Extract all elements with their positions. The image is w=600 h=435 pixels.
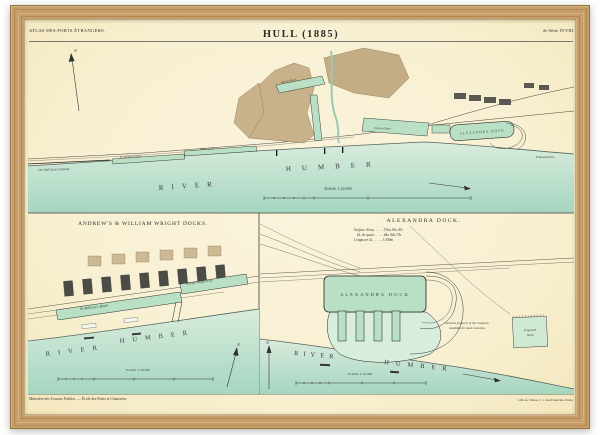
north-arrow-icon: N. [69,48,79,111]
dock-locks [172,302,182,322]
right-inset-title: ALEXANDRA DOCK. [387,218,462,224]
lithographer-credit: Lith. A. Simon, 1. r. des Poitevins, Par… [518,398,573,403]
svg-text:N.: N. [73,48,78,53]
svg-text:available for dock extension.: available for dock extension. [449,326,486,330]
proposed-dock-label-1: Proposed [523,328,537,333]
map-plate: ATLAS DES PORTS ÉTRANGERS. HULL (1885) 2… [24,19,576,415]
left-inset-map: ANDREW'S & WILLIAM WRIGHT DOCKS. [28,221,259,394]
scale-label-right: Echelle 1:10.000 [347,372,372,376]
left-inset-title: ANDREW'S & WILLIAM WRIGHT DOCKS. [78,221,208,227]
frame-right [576,6,589,428]
main-map: The Hull Dock Company St Andrew's Dock A… [28,48,574,213]
svg-text:N.: N. [265,340,270,345]
warehouses [454,83,549,105]
svg-text:Longueur id. . . . . . 3.300m: Longueur id. . . . . . 3.300m [353,238,394,242]
svg-text:Id. de quais . . . . . 4ha 44: Id. de quais . . . . . 4ha 44a 74c [356,233,402,237]
series-title: ATLAS DES PORTS ÉTRANGERS. [29,28,105,33]
victoria-dock-label: Victoria Dock [374,126,391,131]
slipways [82,317,138,328]
river-humber-water [28,142,574,213]
svg-text:Surface d'eau . . . . . 33ha 3: Surface d'eau . . . . . 33ha 30a 43c [354,228,403,232]
framed-map-photo: ATLAS DES PORTS ÉTRANGERS. HULL (1885) 2… [0,0,600,435]
svg-text:Land the property of the Compa: Land the property of the Company [444,321,489,325]
dock-statistics: Surface d'eau . . . . . 33ha 30a 43c Id.… [353,228,403,242]
right-inset-map: ALEXANDRA DOCK. Surface d'eau . . . . . … [260,218,574,394]
frame-left [11,6,24,428]
proposed-dock: Proposed Dock [512,314,548,348]
proposed-dock-label-main: Proposed Dock [535,155,555,159]
wooden-frame: ATLAS DES PORTS ÉTRANGERS. HULL (1885) 2… [10,5,590,429]
map-print-paper: ATLAS DES PORTS ÉTRANGERS. HULL (1885) 2… [24,19,576,415]
svg-text:N.: N. [236,342,241,347]
plate-title: HULL (1885) [263,29,339,40]
frame-bottom [11,415,589,428]
proposed-dock-label-2: Dock [526,333,535,337]
plate-number: 2e Série. Pl.VIII [543,28,574,33]
alexandra-dock-label: ALEXANDRA DOCK [340,292,410,297]
scale-label-main: Echelle 1:20.000 [323,186,351,191]
publisher-credit: Ministère des Travaux Publics. — École d… [29,396,127,401]
extension-note: Land the property of the Company availab… [444,321,489,330]
frame-top [11,6,589,19]
albert-dock-label: Albert Dock [199,146,215,151]
scale-label-left: Echelle 1:10.000 [125,368,150,372]
